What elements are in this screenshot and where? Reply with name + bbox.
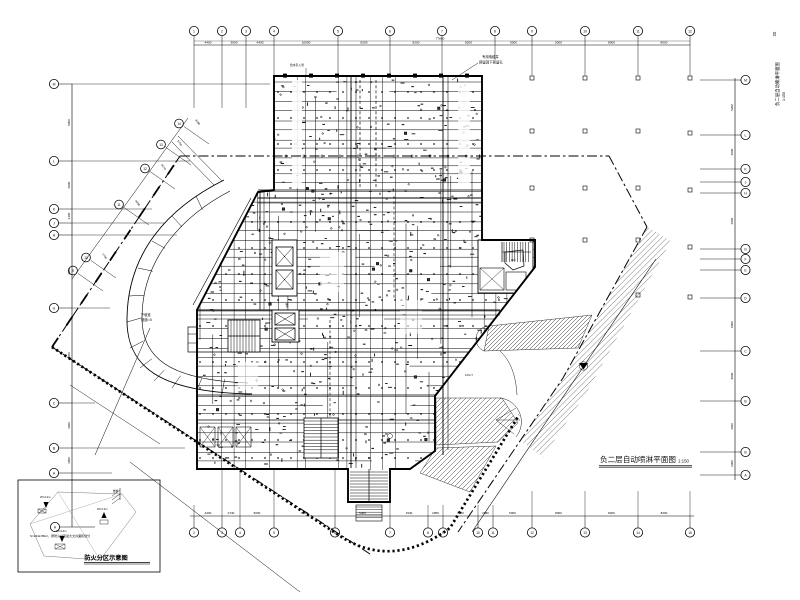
svg-text:2400: 2400 <box>67 212 71 219</box>
svg-text:5000: 5000 <box>555 41 562 45</box>
svg-text:10000: 10000 <box>302 41 311 45</box>
svg-text:G: G <box>53 307 56 311</box>
svg-text:8000: 8000 <box>555 511 562 515</box>
svg-text:8200: 8200 <box>661 511 668 515</box>
svg-text:12: 12 <box>530 531 534 535</box>
svg-text:8200: 8200 <box>608 511 615 515</box>
svg-text:4: 4 <box>273 30 275 34</box>
svg-text:4400: 4400 <box>257 41 264 45</box>
svg-text:3: 3 <box>221 531 223 535</box>
svg-text:13: 13 <box>159 143 163 147</box>
svg-text:负二层自动喷淋平面图: 负二层自动喷淋平面图 <box>774 61 781 106</box>
svg-text:8000: 8000 <box>730 321 734 328</box>
svg-text:6: 6 <box>389 30 391 34</box>
svg-text:1:150: 1:150 <box>782 92 786 101</box>
svg-text:5000: 5000 <box>510 41 517 45</box>
svg-text:4400: 4400 <box>205 511 212 515</box>
svg-text:4400: 4400 <box>730 423 734 430</box>
svg-text:J: J <box>745 181 747 185</box>
svg-text:预留洞下预留孔: 预留洞下预留孔 <box>479 60 503 65</box>
svg-text:3600: 3600 <box>231 41 238 45</box>
svg-text:7: 7 <box>441 30 443 34</box>
svg-text:1480: 1480 <box>457 511 464 515</box>
svg-text:10: 10 <box>583 30 587 34</box>
svg-text:10: 10 <box>84 256 88 260</box>
svg-text:4600: 4600 <box>67 352 71 359</box>
svg-text:1: 1 <box>193 30 195 34</box>
svg-text:G: G <box>744 248 747 252</box>
svg-text:4400: 4400 <box>67 422 71 429</box>
svg-text:2900: 2900 <box>730 460 734 467</box>
svg-text:4400: 4400 <box>205 41 212 45</box>
svg-text:W=4.2m: W=4.2m <box>56 529 67 533</box>
svg-text:6000: 6000 <box>730 148 734 155</box>
svg-text:6: 6 <box>334 531 336 535</box>
svg-text:5000: 5000 <box>509 511 516 515</box>
svg-text:9: 9 <box>72 269 74 273</box>
svg-text:2: 2 <box>193 531 195 535</box>
svg-text:11: 11 <box>636 30 640 34</box>
svg-text:8000: 8000 <box>730 372 734 379</box>
svg-text:负二层自动喷淋平面图: 负二层自动喷淋平面图 <box>600 454 676 464</box>
svg-text:15: 15 <box>688 531 692 535</box>
svg-text:8200: 8200 <box>465 41 472 45</box>
svg-text:8: 8 <box>427 531 429 535</box>
svg-text:3000: 3000 <box>67 457 71 464</box>
svg-text:11: 11 <box>117 203 121 207</box>
svg-text:10: 10 <box>476 531 480 535</box>
svg-text:楼梯: 楼梯 <box>113 489 119 493</box>
svg-text:8000: 8000 <box>608 41 615 45</box>
svg-text:1:150: 1:150 <box>678 459 690 464</box>
svg-text:5200: 5200 <box>730 104 734 111</box>
svg-text:L: L <box>745 134 747 138</box>
svg-text:8200: 8200 <box>301 511 308 515</box>
svg-text:9: 9 <box>442 531 444 535</box>
svg-text:M: M <box>744 79 747 83</box>
svg-text:F: F <box>744 258 746 262</box>
svg-text:W=4.2m: W=4.2m <box>40 495 51 499</box>
svg-text:防火分区示意图: 防火分区示意图 <box>84 554 127 562</box>
svg-text:7: 7 <box>389 531 391 535</box>
svg-text:M: M <box>53 83 56 87</box>
svg-text:9: 9 <box>531 30 533 34</box>
svg-text:6000: 6000 <box>730 217 734 224</box>
svg-text:1RL/7: 1RL/7 <box>465 373 473 377</box>
svg-text:1540: 1540 <box>406 511 413 515</box>
svg-text:5005: 5005 <box>359 511 366 515</box>
svg-text:8200: 8200 <box>361 41 368 45</box>
svg-text:3: 3 <box>245 30 247 34</box>
svg-text:5: 5 <box>273 531 275 535</box>
svg-text:20: 20 <box>772 31 777 36</box>
svg-text:L: L <box>53 160 55 164</box>
svg-text:W=4.3m: W=4.3m <box>97 507 108 511</box>
svg-text:11: 11 <box>491 531 495 535</box>
svg-text:14: 14 <box>636 531 640 535</box>
svg-text:12: 12 <box>143 167 147 171</box>
svg-text:2: 2 <box>221 30 223 34</box>
svg-text:13: 13 <box>583 531 587 535</box>
svg-text:2980: 2980 <box>482 511 489 515</box>
svg-text:12: 12 <box>688 30 692 34</box>
svg-text:8: 8 <box>494 30 496 34</box>
svg-text:2950: 2950 <box>432 511 439 515</box>
svg-text:J: J <box>53 222 55 226</box>
svg-text:下坡道: 下坡道 <box>141 312 151 317</box>
svg-text:14: 14 <box>177 122 181 126</box>
svg-text:8000: 8000 <box>661 41 668 45</box>
svg-text:坡道i=5: 坡道i=5 <box>141 317 152 322</box>
svg-text:HO: HO <box>511 258 516 262</box>
svg-text:专用电缆井: 专用电缆井 <box>482 54 500 59</box>
svg-text:77800: 77800 <box>436 37 445 41</box>
svg-text:给水引入管: 给水引入管 <box>290 63 304 67</box>
svg-text:6000: 6000 <box>67 181 71 188</box>
svg-text:5: 5 <box>337 30 339 34</box>
svg-text:8000: 8000 <box>67 119 71 126</box>
svg-text:5000: 5000 <box>254 511 261 515</box>
svg-text:8200: 8200 <box>413 41 420 45</box>
svg-text:S=2342.88m²，按防火分区最大允许面积划分: S=2342.88m²，按防火分区最大允许面积划分 <box>30 533 90 538</box>
svg-text:2740: 2740 <box>228 511 235 515</box>
svg-text:4: 4 <box>239 531 241 535</box>
